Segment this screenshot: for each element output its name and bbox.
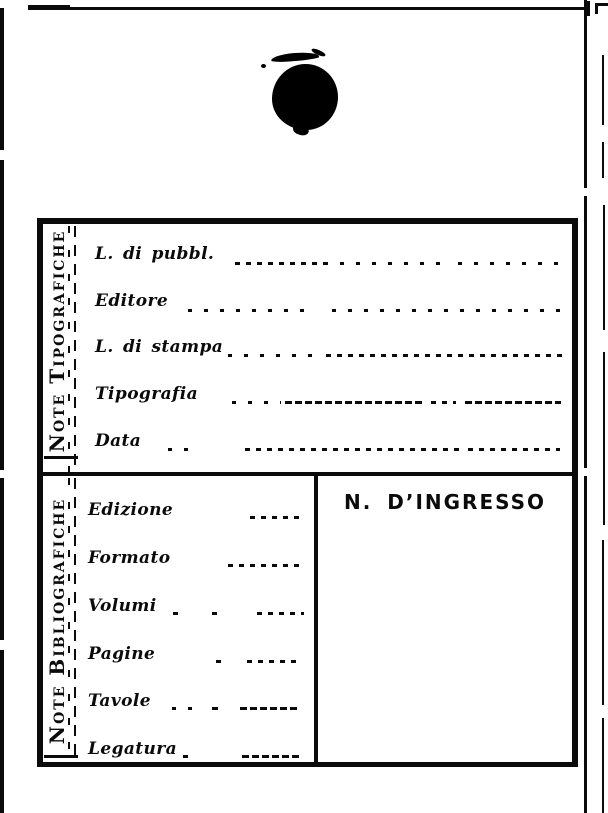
field-label-edizione: Edizione [88,500,173,520]
field-label-tavole: Tavole [88,691,151,711]
dotted-rule [240,707,299,710]
dotted-rule [465,401,561,404]
dotted-rule [188,309,310,312]
dotted-rule [228,354,320,357]
dotted-rule [228,564,303,567]
section-label-note-bibliografiche: Note Bibliografiche [45,498,69,744]
section-divider [37,472,578,476]
page-edge-right-scratch [603,352,605,525]
dotted-rule [250,516,303,519]
field-label-formato: Formato [88,548,170,568]
corner-register-tick [595,3,598,14]
ink-blot-body [272,64,338,130]
dotted-rule [173,612,178,615]
label-column-rule [74,226,76,472]
dotted-rule [183,755,188,758]
field-label-data: Data [95,431,141,451]
page-edge-right-scratch [603,205,605,330]
dotted-rule [245,448,461,451]
field-label-pagine: Pagine [88,644,155,664]
page-edge-right-scratch [602,55,604,125]
catalog-card-scan: Note Tipografiche Note Bibliografiche L.… [0,0,608,813]
field-label-l-di-pubbl: L. di pubbl. [95,244,214,264]
dotted-rule [257,612,304,615]
dotted-rule [332,309,563,312]
dotted-rule [172,707,192,710]
field-label-editore: Editore [95,291,168,311]
form-border-top [37,218,578,224]
ingresso-panel-divider [314,476,318,762]
label-column-rule [74,478,76,755]
section-label-note-tipografiche: Note Tipografiche [45,230,69,453]
field-label-l-di-stampa: L. di stampa [95,337,223,357]
dotted-rule [216,660,221,663]
page-edge-right-line [584,476,587,813]
side-label-underline [44,456,78,459]
page-edge-top-line [28,7,588,10]
dotted-rule [458,262,562,265]
dotted-rule [285,401,422,404]
page-edge-left-line [0,650,4,813]
corner-register-tick [587,1,590,16]
page-edge-right-scratch [602,540,604,705]
form-border-left [37,218,43,767]
page-edge-right-line [584,196,587,468]
dotted-rule [168,448,197,451]
ink-blot-smear [271,51,320,63]
dotted-rule [431,401,456,404]
dotted-rule [212,707,218,710]
form-border-bottom [37,762,578,767]
dotted-rule [232,401,281,404]
field-label-legatura: Legatura [88,739,177,759]
form-border-right [572,218,578,767]
page-edge-left-line [0,478,4,640]
dotted-rule [235,262,330,265]
dotted-rule [468,448,560,451]
page-edge-right-scratch [602,718,604,813]
dotted-rule [340,262,445,265]
side-label-underline [44,755,78,758]
ink-blot-speck [261,64,266,68]
page-edge-right-scratch [602,142,604,178]
ingresso-panel-title: N. D’INGRESSO [318,490,572,514]
dotted-rule [242,755,299,758]
dotted-rule [212,612,217,615]
page-edge-top-line [28,5,70,10]
page-edge-left-line [0,160,4,470]
field-label-tipografia: Tipografia [95,384,198,404]
field-label-volumi: Volumi [88,596,157,616]
page-edge-left-line [0,8,4,150]
dotted-rule [326,354,564,357]
dotted-rule [247,660,300,663]
page-edge-right-line [584,0,587,188]
